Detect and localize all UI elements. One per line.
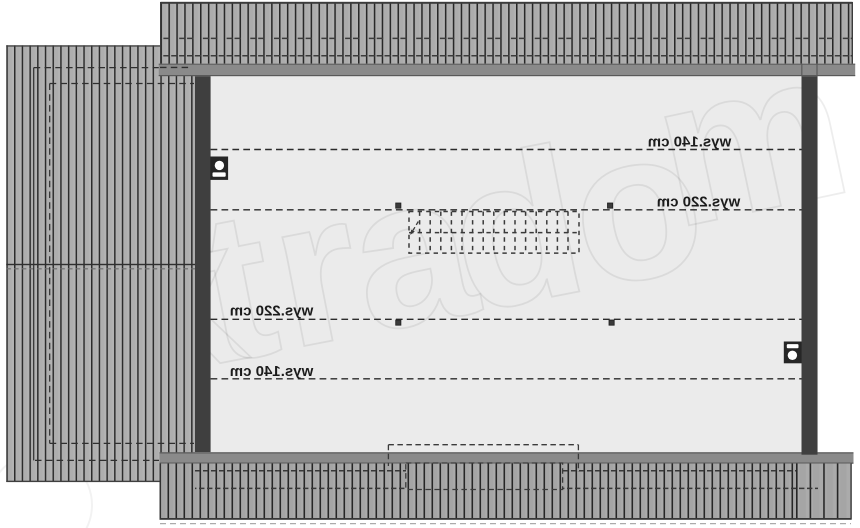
- svg-text:wys.220 cm: wys.220 cm: [657, 193, 741, 210]
- svg-text:wys.140 cm: wys.140 cm: [648, 133, 732, 150]
- svg-text:wys.140 cm: wys.140 cm: [230, 363, 314, 380]
- svg-text:wys.220 cm: wys.220 cm: [230, 303, 314, 320]
